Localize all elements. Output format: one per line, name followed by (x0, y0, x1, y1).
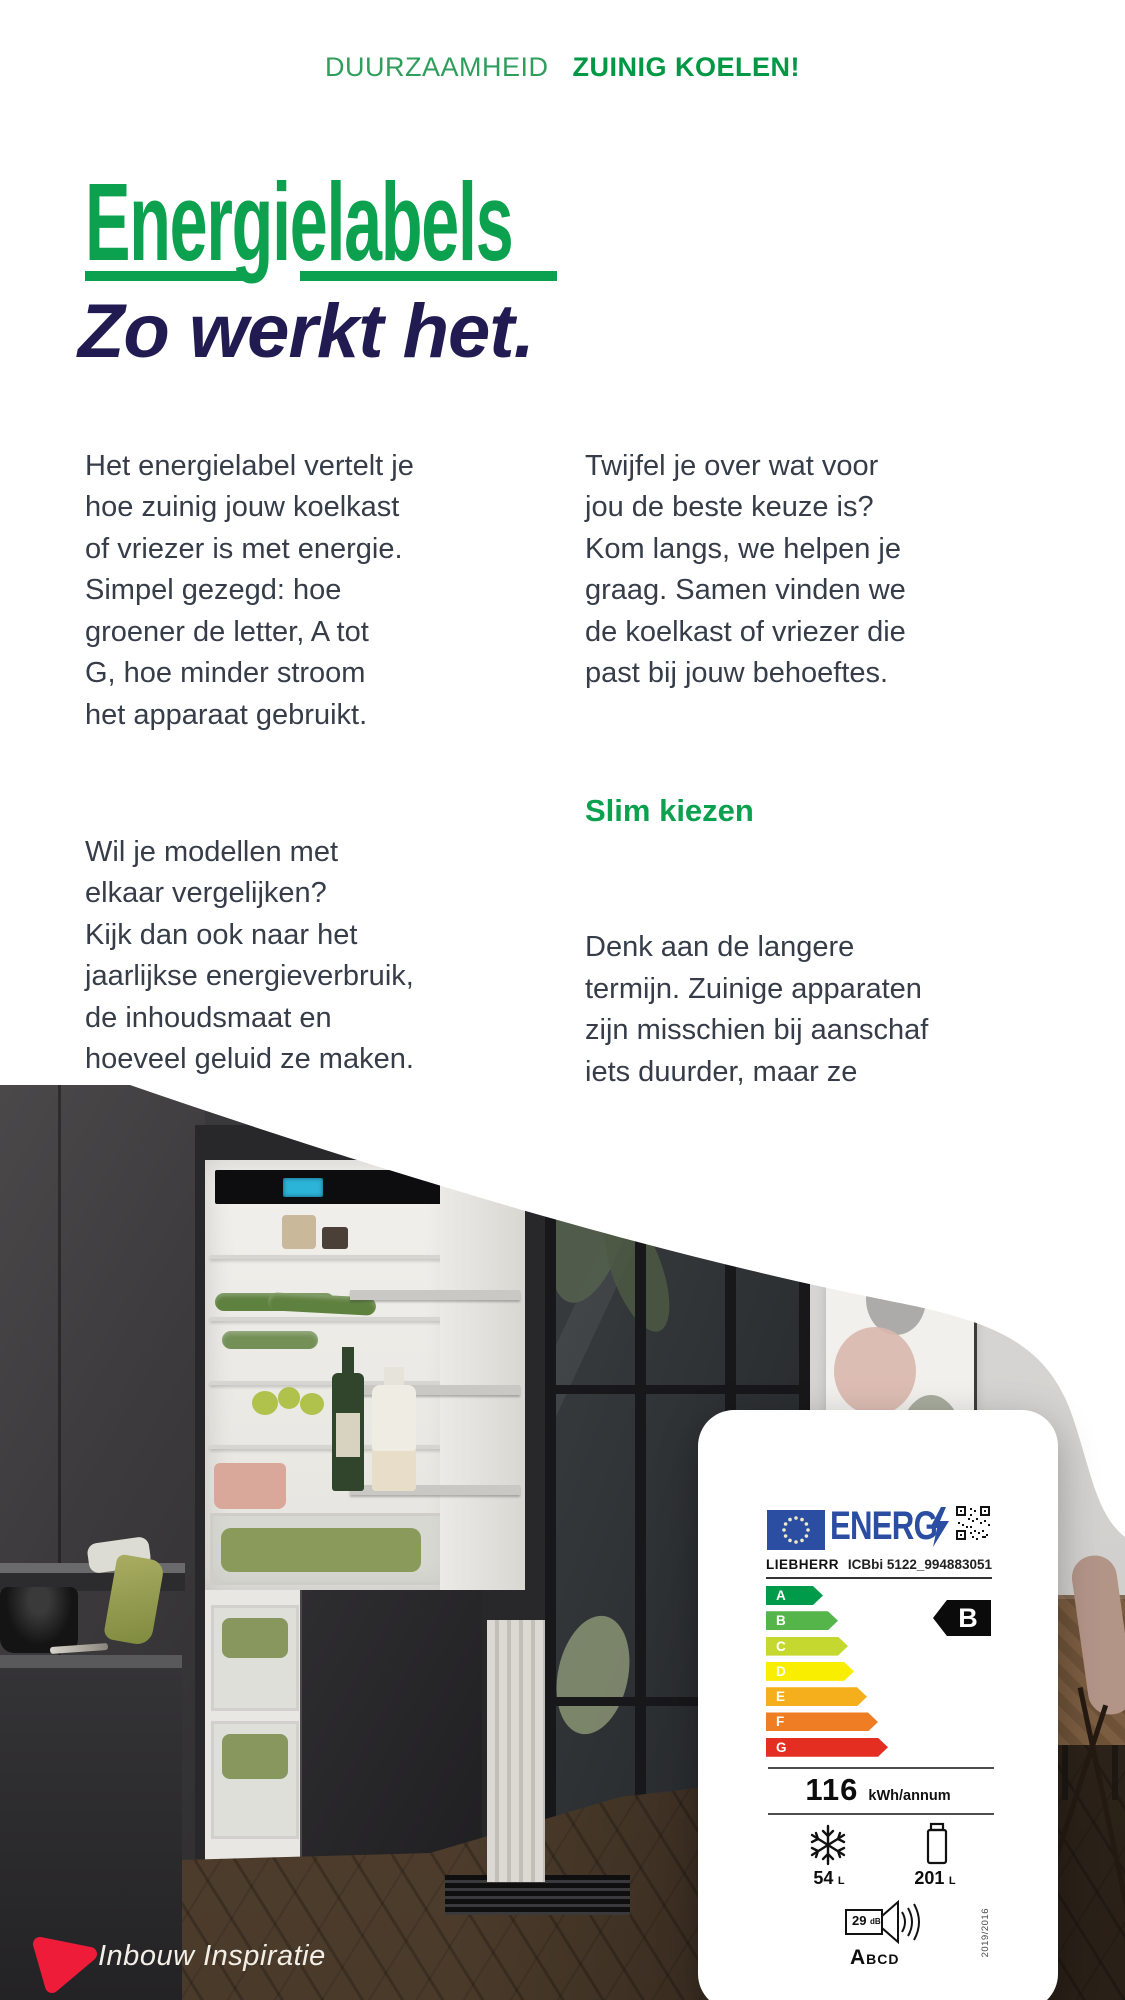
eyebrow: DUURZAAMHEID ZUINIG KOELEN! (0, 52, 1125, 83)
intro-right-paragraph-1: Twijfel je over wat voor jou de beste ke… (585, 446, 1045, 695)
consumption-unit: kWh/annum (868, 1788, 950, 1804)
noise-scale-first: A (850, 1946, 866, 1969)
consumption-value: 116 (805, 1772, 858, 1808)
eu-flag-icon (767, 1510, 825, 1550)
rating-letter: B (933, 1600, 991, 1636)
energy-classes: ABCDEFG (766, 1586, 888, 1763)
energy-class-g: G (766, 1738, 888, 1757)
energy-class-b: B (766, 1611, 838, 1630)
energy-class-letter: F (766, 1712, 878, 1731)
noise-unit: dB (870, 1917, 881, 1926)
fridge-volume: 201 L (890, 1868, 980, 1889)
fridge-volume-unit: L (949, 1875, 956, 1887)
energ-logo-text: ENERG (830, 1506, 937, 1546)
freezer-volume-unit: L (838, 1875, 845, 1887)
eyebrow-space (557, 52, 565, 82)
noise-value: 29 (852, 1913, 866, 1928)
noise-indicator: 29 dB (844, 1900, 924, 1944)
consumption-row: 116 kWh/annum (698, 1772, 1058, 1808)
energy-class-d: D (766, 1662, 854, 1681)
eyebrow-regular: DUURZAAMHEID (325, 52, 549, 82)
page-subtitle: Zo werkt het. (78, 294, 534, 370)
noise-scale: ABCD (850, 1946, 900, 1970)
energy-class-letter: B (766, 1611, 838, 1630)
energy-class-c: C (766, 1637, 848, 1656)
snowflake-icon (804, 1824, 852, 1866)
label-brand-rule (766, 1577, 992, 1579)
title-underline-left (85, 271, 243, 281)
energy-class-letter: A (766, 1586, 823, 1605)
label-model-number: ICBbi 5122_994883051 (848, 1557, 992, 1572)
rating-arrow: B (933, 1600, 991, 1636)
lightning-bolt-icon (928, 1507, 950, 1547)
energy-class-letter: E (766, 1687, 867, 1706)
energy-class-letter: G (766, 1738, 888, 1757)
label-brand: LIEBHERR (766, 1557, 839, 1572)
page-title-wrap: Energielabels (85, 168, 512, 278)
regulation-number: 2019/2016 (980, 1908, 991, 1957)
inbouw-logo-triangle (24, 1930, 104, 2000)
freezer-volume-value: 54 (813, 1868, 833, 1888)
energy-class-a: A (766, 1586, 823, 1605)
fridge-volume-value: 201 (914, 1868, 944, 1888)
label-divider-top (768, 1767, 994, 1769)
freezer-volume: 54 L (784, 1868, 874, 1889)
energy-class-letter: D (766, 1662, 854, 1681)
title-underline-right (300, 271, 557, 281)
fridge-compartment-icon (922, 1822, 952, 1866)
qr-code-icon (955, 1506, 991, 1540)
energy-class-e: E (766, 1687, 867, 1706)
eyebrow-bold: ZUINIG KOELEN! (573, 52, 801, 82)
label-divider-bottom (768, 1813, 994, 1815)
energy-label-card: ENERG LIEBHERR ICBbi 5 (698, 1410, 1058, 2000)
intro-left-paragraph-1: Het energielabel vertelt je hoe zuinig j… (85, 446, 485, 737)
page-title: Energielabels (85, 161, 512, 284)
slim-kiezen-heading: Slim kiezen (585, 790, 1045, 832)
noise-scale-rest: BCD (866, 1951, 899, 1967)
energy-class-f: F (766, 1712, 878, 1731)
brochure-page: DUURZAAMHEID ZUINIG KOELEN! Energielabel… (0, 0, 1125, 2000)
footer-brand-name: Inbouw Inspiratie (98, 1940, 326, 1973)
energy-class-letter: C (766, 1637, 848, 1656)
kitchen-photo: ENERG LIEBHERR ICBbi 5 (0, 1085, 1125, 2000)
